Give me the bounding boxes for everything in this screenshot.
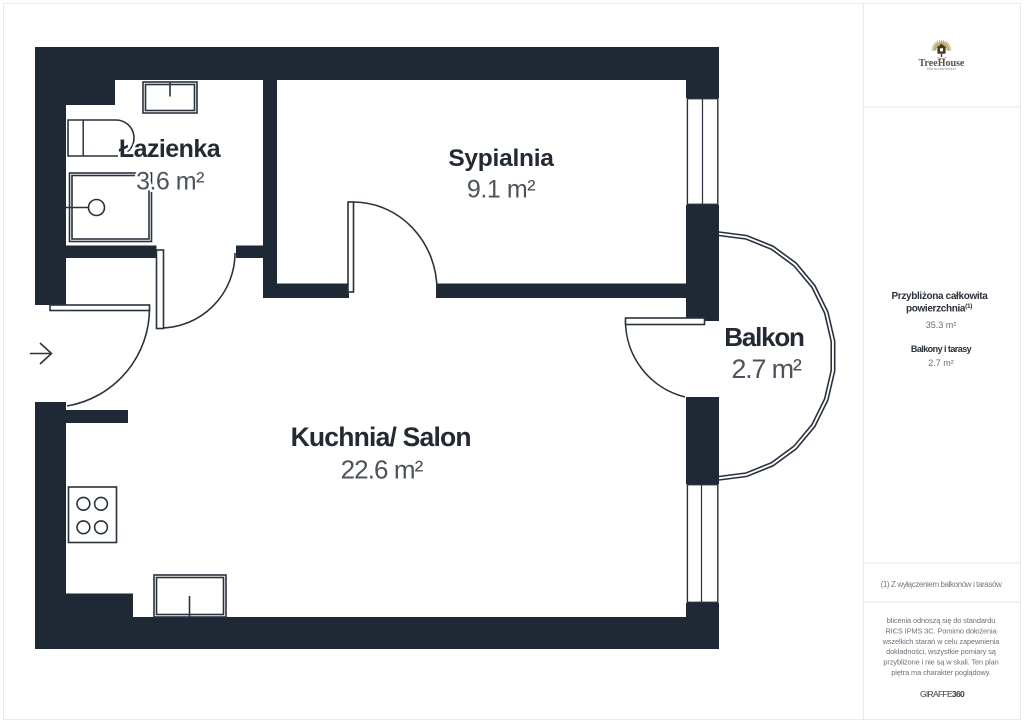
svg-text:blicenia odnoszą się do standa: blicenia odnoszą się do standardu [887,616,995,625]
svg-text:Kuchnia/ Salon: Kuchnia/ Salon [291,422,471,452]
svg-text:przybliżone i nie są w skali.: przybliżone i nie są w skali. Ten plan [883,658,998,667]
svg-text:Łazienka: Łazienka [119,135,222,163]
svg-text:Balkony i tarasy: Balkony i tarasy [911,344,972,354]
svg-text:3.6 m²: 3.6 m² [136,168,204,196]
svg-text:(1) Z wyłączeniem balkonów i t: (1) Z wyłączeniem balkonów i tarasów [881,580,1002,589]
svg-text:RICS IPMS 3C. Pomimo dołożenia: RICS IPMS 3C. Pomimo dołożenia [885,626,997,635]
svg-text:piętra ma charakter poglądowy.: piętra ma charakter poglądowy. [891,668,991,677]
svg-text:2.7 m²: 2.7 m² [731,354,802,384]
svg-text:35.3 m²: 35.3 m² [926,320,957,330]
svg-text:powierzchnia(1): powierzchnia(1) [906,303,972,315]
svg-text:Balkon: Balkon [724,322,804,352]
svg-text:2.7 m²: 2.7 m² [928,358,954,368]
svg-text:Nieruchomości: Nieruchomości [927,66,956,71]
svg-text:GIRAFFE360: GIRAFFE360 [920,689,965,699]
svg-text:22.6 m²: 22.6 m² [341,455,424,485]
svg-text:Sypialnia: Sypialnia [448,145,554,172]
svg-text:wszelkich starań w celu zapewn: wszelkich starań w celu zapewnienia [882,637,1001,646]
svg-text:9.1 m²: 9.1 m² [467,176,535,204]
svg-text:Przybliżona całkowita: Przybliżona całkowita [891,291,988,302]
svg-text:dokładności, wszystkie pomiary: dokładności, wszystkie pomiary są [886,647,997,656]
